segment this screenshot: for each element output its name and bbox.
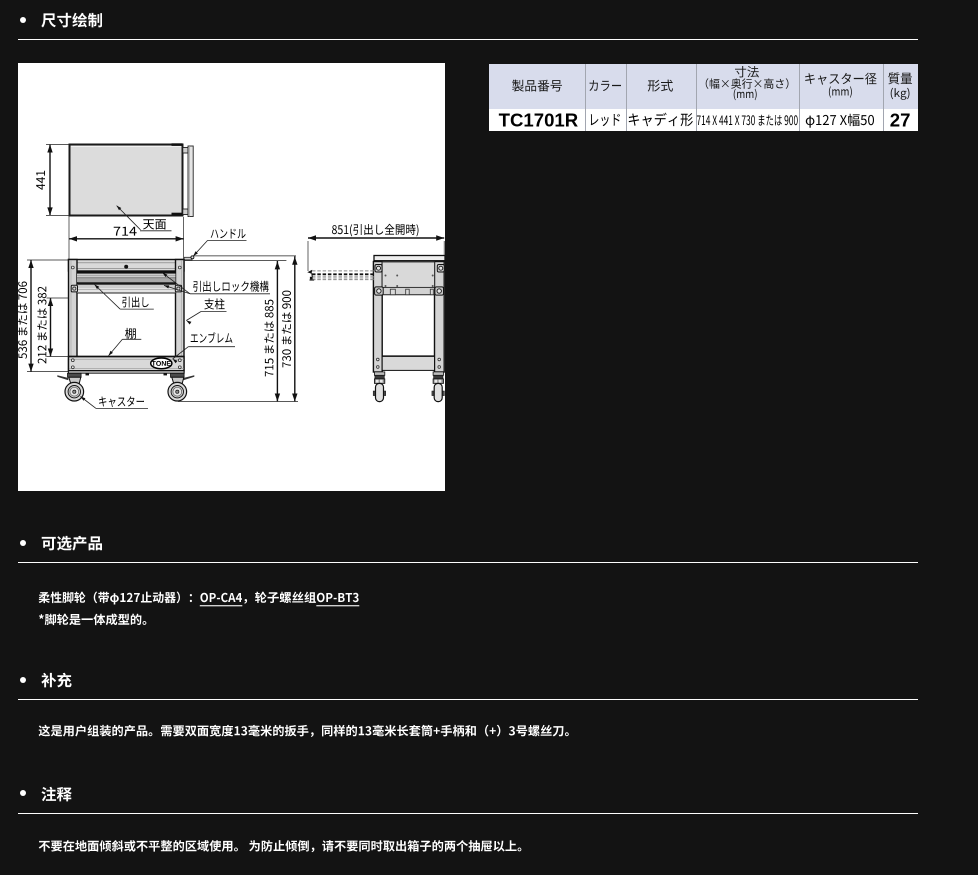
svg-text:TC1701R: TC1701R bbox=[499, 109, 579, 130]
svg-text:27: 27 bbox=[890, 109, 911, 130]
